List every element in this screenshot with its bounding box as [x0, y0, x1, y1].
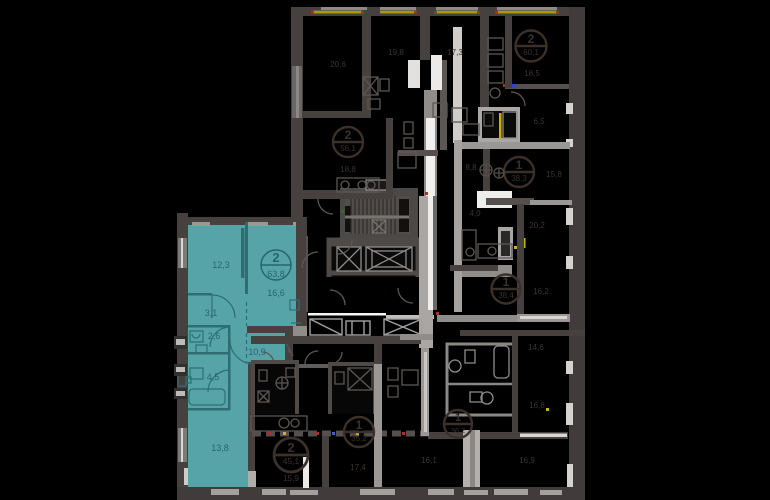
svg-text:17,4: 17,4: [350, 463, 366, 472]
svg-text:20,6: 20,6: [330, 60, 346, 69]
svg-text:8,8: 8,8: [465, 163, 477, 172]
svg-text:56,1: 56,1: [340, 144, 356, 153]
svg-text:4,5: 4,5: [207, 372, 220, 382]
svg-text:16,8: 16,8: [529, 401, 545, 410]
svg-text:16,1: 16,1: [421, 456, 437, 465]
svg-text:18,5: 18,5: [524, 69, 540, 78]
svg-text:1: 1: [516, 158, 523, 172]
svg-text:17,3: 17,3: [447, 48, 463, 57]
svg-text:45,1: 45,1: [283, 456, 300, 466]
svg-text:14,6: 14,6: [528, 343, 544, 352]
svg-text:16,2: 16,2: [533, 287, 549, 296]
svg-text:19,8: 19,8: [388, 48, 404, 57]
svg-text:15,9: 15,9: [283, 474, 299, 483]
svg-text:20,2: 20,2: [529, 221, 545, 230]
svg-text:2: 2: [272, 250, 279, 265]
svg-text:6,5: 6,5: [533, 117, 545, 126]
svg-text:60,1: 60,1: [523, 48, 539, 57]
svg-text:1: 1: [455, 412, 461, 424]
svg-text:15,8: 15,8: [546, 170, 562, 179]
svg-text:18,8: 18,8: [340, 165, 356, 174]
svg-text:3,1: 3,1: [205, 308, 218, 318]
svg-text:1: 1: [503, 275, 510, 289]
svg-text:16,6: 16,6: [267, 288, 285, 298]
svg-text:35,2: 35,2: [351, 434, 367, 443]
svg-text:12,3: 12,3: [212, 260, 230, 270]
svg-text:36,2: 36,2: [451, 426, 466, 435]
svg-text:38,3: 38,3: [511, 174, 527, 183]
svg-text:4,0: 4,0: [469, 209, 481, 218]
svg-text:13,8: 13,8: [211, 443, 229, 453]
svg-text:2,6: 2,6: [208, 331, 221, 341]
svg-text:16,9: 16,9: [519, 456, 535, 465]
svg-text:2: 2: [287, 440, 294, 455]
svg-text:63,8: 63,8: [267, 269, 285, 279]
svg-text:2: 2: [345, 128, 352, 142]
svg-text:38,4: 38,4: [498, 291, 514, 300]
svg-text:1: 1: [356, 418, 363, 432]
svg-text:2: 2: [528, 32, 535, 46]
